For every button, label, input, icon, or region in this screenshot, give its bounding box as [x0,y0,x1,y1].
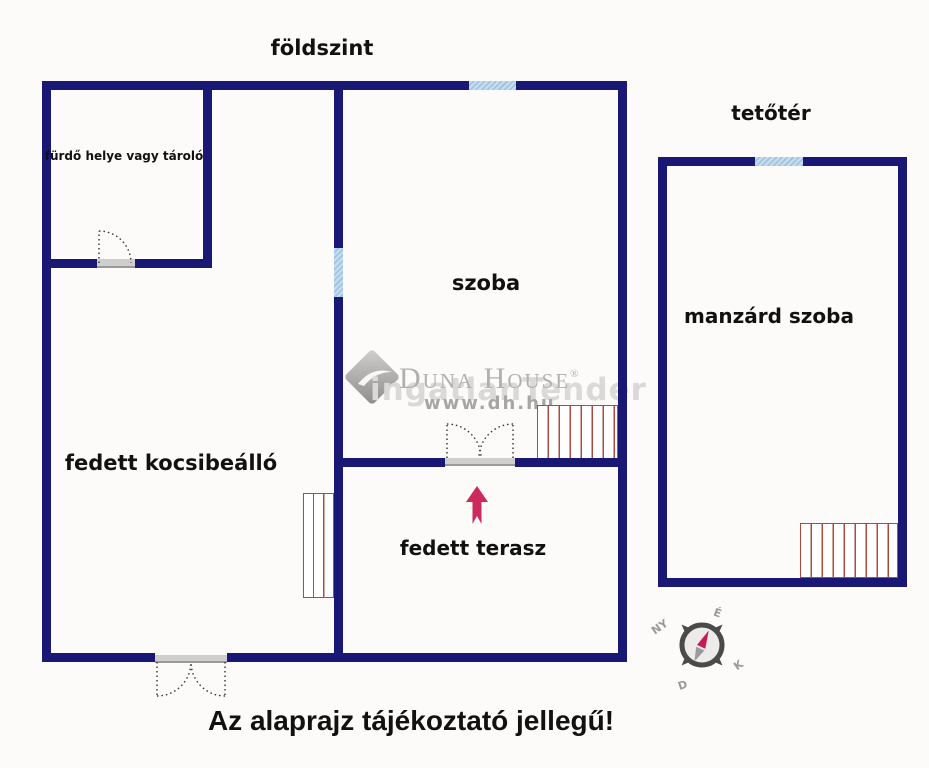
carport-label: fedett kocsibeálló [65,451,277,475]
attic-wall-bottom [658,578,907,587]
floor-plan-canvas: ingatlanTender Duna House® www.dh.hu föl… [0,0,929,768]
disclaimer-text: Az alaprajz tájékoztató jellegű! [208,705,614,737]
entrance-door-threshold [155,655,227,663]
room-terrace-wall-a [334,458,445,467]
gf-wall-bottom-right [227,653,627,662]
entrance-door-left-arc [157,662,191,696]
bathroom-label: fürdő helye vagy tároló [45,149,204,163]
terrace-label: fedett terasz [400,536,546,560]
bathroom-wall-right [203,81,212,268]
bathroom-door-threshold [97,259,135,268]
room-side-window [334,248,343,297]
compass-west-label: NY [649,616,671,637]
entrance-door-right-arc [191,662,225,696]
terrace-door-threshold [445,458,515,466]
compass-north-label: É [712,606,724,621]
mansard-room-label: manzárd szoba [684,304,854,328]
room-label: szoba [452,271,520,295]
compass-needle-icon [690,629,713,664]
gf-wall-left [42,81,51,662]
room-stairs [537,405,618,462]
terrace-door-left-arc [447,424,481,458]
compass-east-label: K [731,657,746,673]
attic-title: tetőtér [731,101,810,125]
watermark-url: www.dh.hu [424,393,556,414]
compass-points-icon [678,621,727,670]
room-top-window [469,81,516,90]
attic-wall-right [898,157,907,587]
carport-window-symbol [303,493,334,598]
attic-top-window [755,157,803,166]
room-wall-left-lower [334,297,343,662]
stairs-direction-arrow [466,486,488,524]
watermark-brand: Duna House® [399,362,581,396]
gf-wall-right [618,81,627,662]
ground-floor-title: földszint [271,36,374,60]
attic-wall-left [658,157,667,587]
watermark-brand-text: Duna House [399,362,570,395]
bathroom-wall-bottom-a [42,259,98,268]
bathroom-wall-bottom-b [135,259,212,268]
compass-south-label: D [676,678,689,693]
attic-stairs [800,523,898,578]
registered-mark: ® [570,368,580,380]
terrace-door-right-arc [479,424,513,458]
room-wall-left-upper [334,81,343,248]
room-terrace-wall-b [515,458,627,467]
gf-wall-bottom-left [42,653,155,662]
compass-ring-icon [682,625,722,665]
